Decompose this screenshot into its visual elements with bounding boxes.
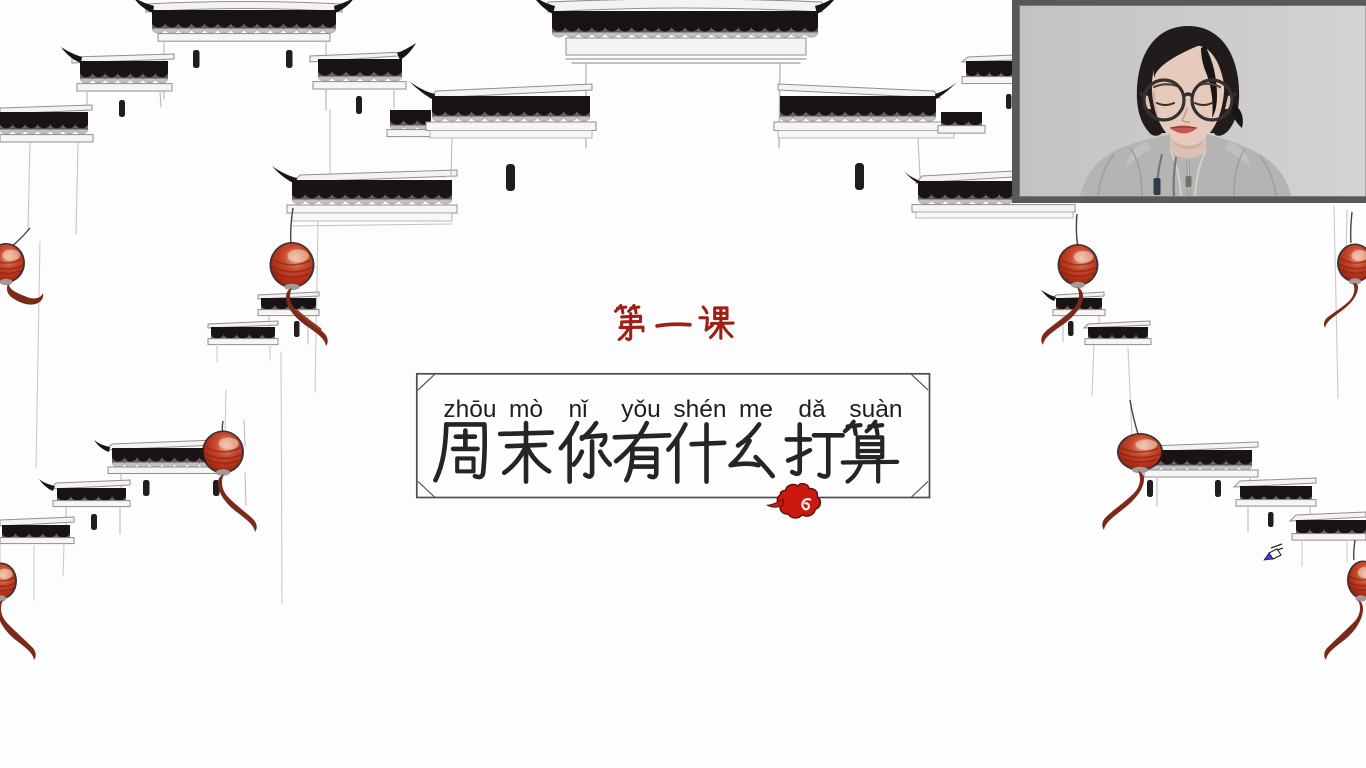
svg-text:me: me <box>739 396 773 423</box>
svg-text:dǎ: dǎ <box>798 396 826 423</box>
svg-text:shén: shén <box>673 396 726 423</box>
svg-text:mò: mò <box>509 396 543 423</box>
svg-text:nǐ: nǐ <box>568 396 589 423</box>
svg-text:yǒu: yǒu <box>621 396 661 423</box>
svg-text:zhōu: zhōu <box>443 396 496 423</box>
svg-text:suàn: suàn <box>849 396 902 423</box>
